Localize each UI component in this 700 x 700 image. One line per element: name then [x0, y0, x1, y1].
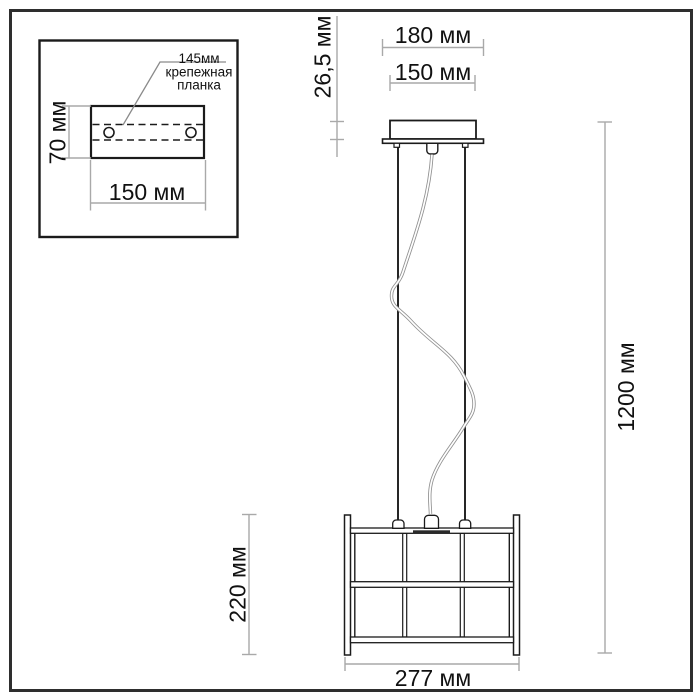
canopy-stem-right	[463, 143, 469, 147]
cord-grip	[427, 143, 438, 154]
bracket-note-line3: планка	[177, 78, 221, 93]
drawing-page: 145мм крепежная планка 70 мм 150 мм	[0, 0, 700, 700]
canopy-body	[390, 121, 476, 140]
shade-connector-right	[460, 520, 471, 528]
overall-height-label: 1200 мм	[613, 342, 639, 431]
shade-post-right	[514, 515, 520, 655]
shade-width-label: 277 мм	[395, 665, 471, 691]
canopy-plate-width-label: 180 мм	[395, 22, 471, 48]
dim-canopy-body-width: 150 мм	[390, 59, 475, 91]
dim-overall-height: 1200 мм	[598, 122, 640, 653]
canopy-stem-left	[394, 143, 400, 147]
dimensions: 180 мм 150 мм 26,5 мм 1200 мм	[225, 16, 640, 691]
power-cable-core	[392, 155, 475, 515]
shade-bar-bottom	[351, 637, 514, 643]
plate-width-label: 150 мм	[109, 179, 185, 205]
dim-shade-width: 277 мм	[345, 657, 519, 691]
canopy-body-width-label: 150 мм	[395, 59, 471, 85]
shade-connector-left	[393, 520, 404, 528]
dim-shade-height: 220 мм	[225, 515, 257, 655]
shade-post-left	[345, 515, 351, 655]
shade-socket-bar	[413, 530, 450, 533]
screw-hole-left	[104, 128, 114, 138]
dim-canopy-plate-width: 180 мм	[383, 22, 484, 56]
shade-bar-middle	[351, 582, 514, 588]
dim-canopy-height: 26,5 мм	[310, 16, 345, 157]
shade-connector-center	[425, 515, 439, 528]
power-cable-outline	[392, 155, 475, 515]
mounting-plate-inset: 145мм крепежная планка 70 мм 150 мм	[40, 41, 238, 238]
screw-hole-right	[186, 128, 196, 138]
shade-height-label: 220 мм	[225, 546, 251, 622]
suspension	[392, 147, 475, 520]
dimension-drawing: 145мм крепежная планка 70 мм 150 мм	[0, 0, 700, 700]
plate-height-label: 70 мм	[45, 101, 71, 165]
canopy-height-label: 26,5 мм	[310, 16, 336, 99]
shade	[345, 515, 520, 655]
